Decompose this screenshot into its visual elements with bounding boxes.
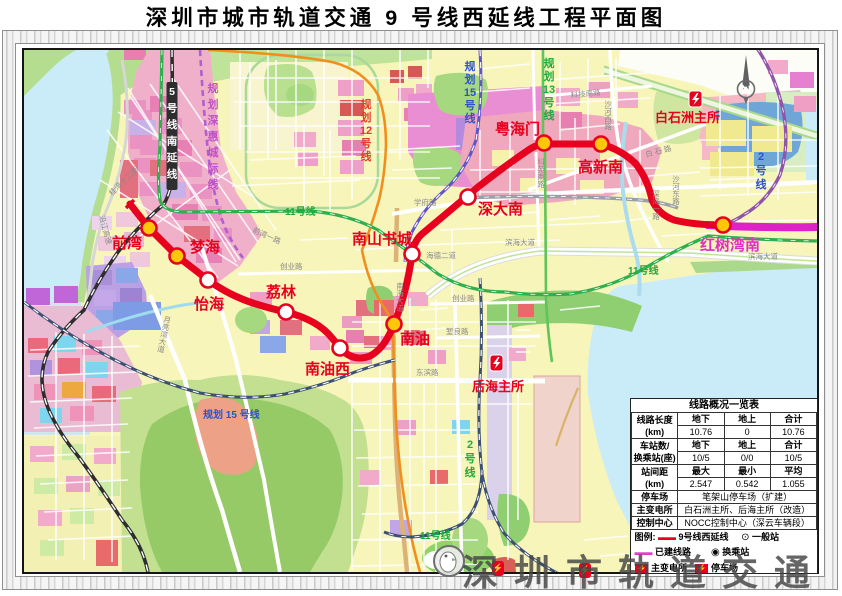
- svg-text:后海主所: 后海主所: [472, 379, 524, 394]
- svg-text:南油西: 南油西: [305, 360, 350, 378]
- svg-text:白石洲主所: 白石洲主所: [655, 110, 720, 125]
- svg-text:科苑南路: 科苑南路: [536, 157, 545, 189]
- svg-text:创业路: 创业路: [280, 261, 303, 271]
- svg-text:规划 15 号线: 规划 15 号线: [203, 408, 260, 421]
- svg-text:沙河西路: 沙河西路: [603, 100, 612, 130]
- svg-text:沙河东路: 沙河东路: [671, 175, 680, 205]
- svg-text:规划12号线: 规划12号线: [360, 97, 372, 163]
- svg-text:深湾一路: 深湾一路: [651, 190, 660, 221]
- svg-text:创业路: 创业路: [452, 293, 475, 303]
- svg-text:怡海: 怡海: [194, 295, 224, 313]
- svg-text:梦海: 梦海: [190, 238, 220, 256]
- svg-text:高新南: 高新南: [578, 158, 623, 176]
- svg-text:规划15号线: 规划15号线: [464, 59, 476, 125]
- svg-text:11号线: 11号线: [285, 205, 316, 218]
- svg-text:海德二道: 海德二道: [426, 250, 456, 260]
- svg-text:学府路: 学府路: [414, 197, 437, 207]
- svg-text:深大南: 深大南: [478, 200, 523, 218]
- svg-text:滨海大道: 滨海大道: [748, 251, 778, 261]
- svg-text:堑良路: 堑良路: [446, 326, 469, 336]
- svg-text:规划13号线: 规划13号线: [543, 56, 555, 122]
- svg-text:南山书城: 南山书城: [352, 230, 412, 248]
- svg-text:荔林: 荔林: [266, 283, 297, 301]
- svg-text:东滨路: 东滨路: [416, 367, 439, 377]
- svg-text:南油: 南油: [400, 330, 430, 348]
- svg-text:滨海大道: 滨海大道: [505, 237, 535, 247]
- svg-text:11号线: 11号线: [628, 264, 659, 277]
- svg-text:南海大道: 南海大道: [395, 281, 404, 314]
- svg-text:前湾: 前湾: [112, 234, 142, 252]
- svg-text:粤海门: 粤海门: [495, 120, 540, 138]
